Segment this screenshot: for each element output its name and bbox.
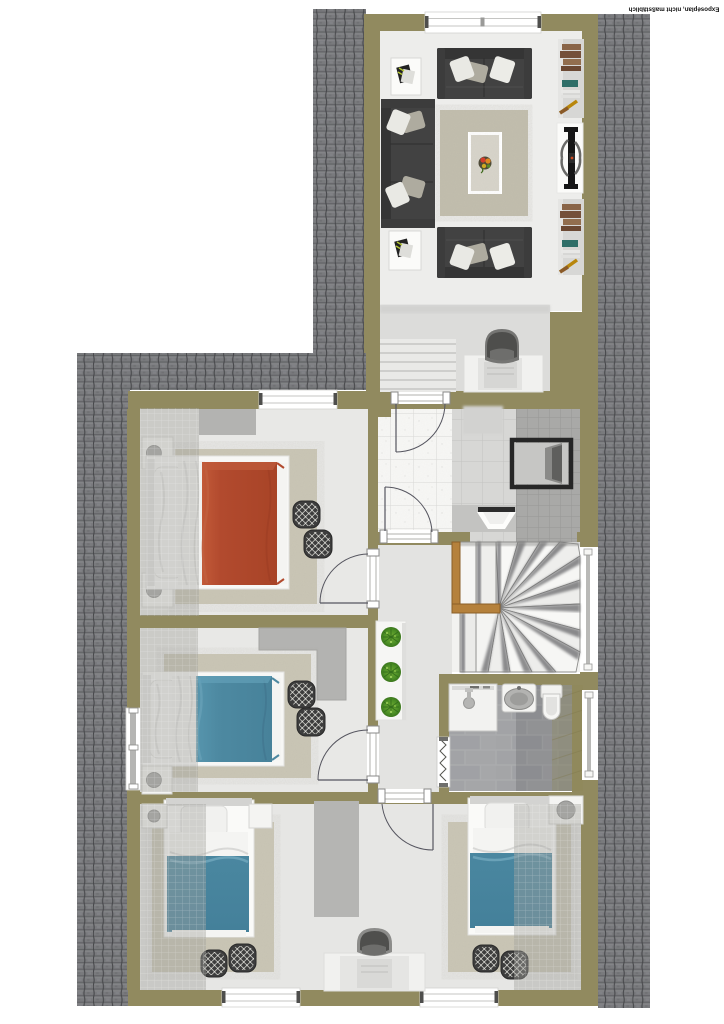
svg-text:Exposéplan, nicht maßstäblich: Exposéplan, nicht maßstäblich: [628, 6, 719, 13]
